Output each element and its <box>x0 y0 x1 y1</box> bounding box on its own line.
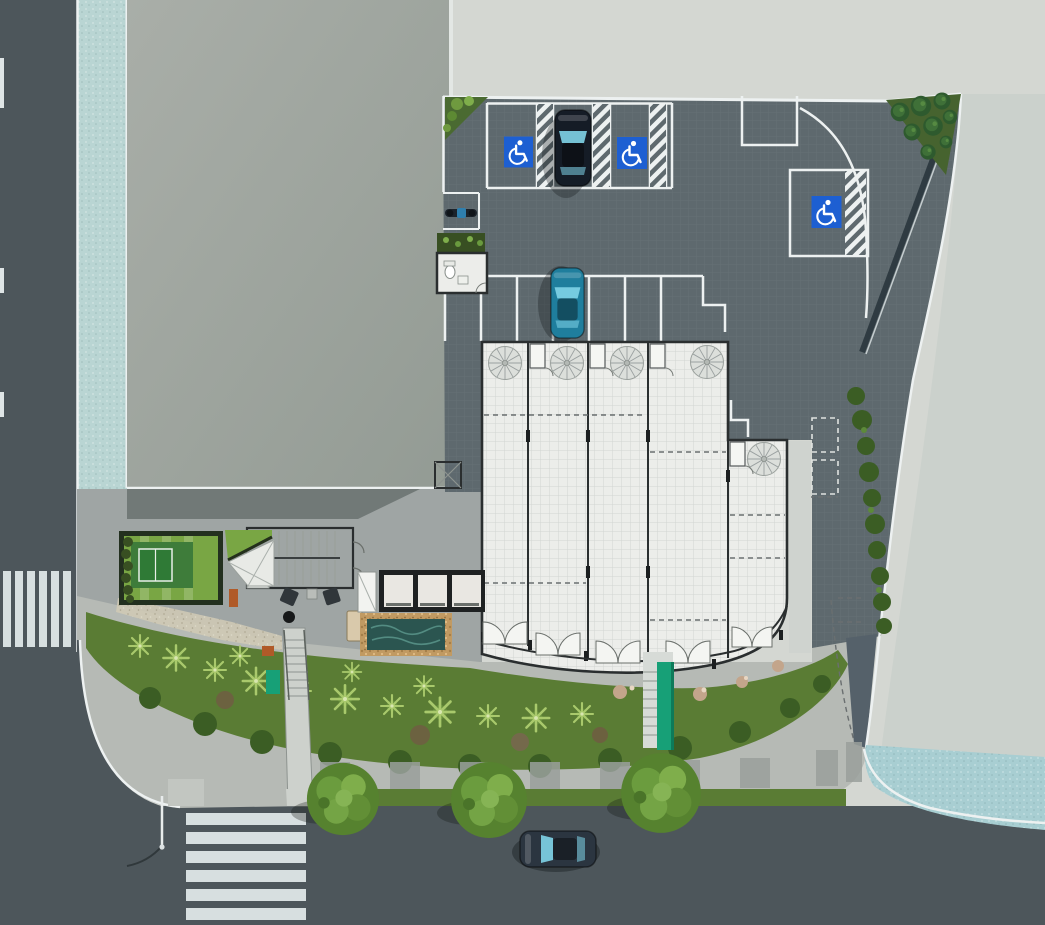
spiral-stair <box>489 347 522 380</box>
green-planter <box>266 670 280 694</box>
lane-dash <box>0 392 4 417</box>
parked-sedan <box>551 268 584 338</box>
parked-suv <box>555 110 591 186</box>
lamp-pad <box>168 779 204 806</box>
water-pool <box>367 619 445 650</box>
accessible-washroom <box>437 253 487 293</box>
street-tree <box>307 763 379 835</box>
elevator-bank <box>379 570 485 612</box>
hedge-leaf <box>467 236 473 242</box>
toilet-fixture <box>445 266 455 279</box>
palm-plant <box>230 646 250 666</box>
elevator-cab <box>418 575 447 607</box>
hedge-leaf <box>477 240 483 246</box>
grass-verge <box>300 789 846 806</box>
palm-plant <box>571 703 593 725</box>
sink-fixture <box>458 276 468 284</box>
street-parked-car <box>520 831 596 867</box>
bench <box>262 646 274 656</box>
south-street-pavement <box>0 806 1045 925</box>
site-plan-rendering <box>0 0 1045 925</box>
palm-plant <box>414 676 434 696</box>
street-tree <box>621 753 701 833</box>
wheelchair-accessible-icon <box>504 137 533 168</box>
coffee-table <box>283 611 295 623</box>
unit-washroom <box>590 344 605 368</box>
palm-plant <box>243 668 269 694</box>
lane-dash <box>0 58 4 108</box>
spiral-stair <box>611 347 644 380</box>
elevator-door-sill <box>454 603 479 606</box>
street-trees <box>291 753 701 838</box>
conifer-tree <box>904 124 921 141</box>
conifer-tree <box>943 110 957 124</box>
conifer-tree <box>920 144 935 159</box>
conifer-tree <box>934 93 951 110</box>
elevator-cab <box>452 575 481 607</box>
water-feature <box>360 613 452 656</box>
spiral-stair <box>551 347 584 380</box>
lane-dash <box>0 268 4 293</box>
hatched-no-park-zone <box>593 104 610 187</box>
side-table <box>307 589 317 599</box>
wheelchair-accessible-icon <box>617 137 647 169</box>
bench <box>229 589 238 607</box>
palm-plant <box>331 685 359 713</box>
garden-stair <box>643 652 674 750</box>
stair-green-wall-edge <box>671 662 674 750</box>
elevator-door-sill <box>420 603 445 606</box>
conifer-tree <box>911 96 931 116</box>
palm-plant <box>426 698 455 727</box>
lamp-head <box>159 844 164 849</box>
hedge-leaf <box>455 241 461 247</box>
unit-washroom <box>650 344 665 368</box>
toilet-tank <box>444 261 455 266</box>
unit-washroom <box>730 442 745 466</box>
conifer-tree <box>940 136 953 149</box>
conifer-tree <box>891 103 910 122</box>
palm-plant <box>343 663 362 682</box>
palm-plant <box>477 705 499 727</box>
elevator-door-sill <box>386 603 411 606</box>
wheelchair-accessible-icon <box>812 196 842 228</box>
palm-plant <box>204 659 226 681</box>
palm-plant <box>523 705 549 731</box>
hatched-no-park-zone <box>650 104 666 187</box>
elevator-cab <box>384 575 413 607</box>
west-neighbor-roof <box>127 0 452 489</box>
hedge-leaf <box>443 237 449 243</box>
street-tree <box>451 762 527 838</box>
palm-plant <box>163 645 188 670</box>
east-exterior-walkway <box>789 441 811 653</box>
unit-washroom <box>530 344 545 368</box>
hatched-no-park-zone <box>845 171 866 255</box>
spiral-stair <box>691 346 724 379</box>
palm-plant <box>381 695 403 717</box>
palm-plant <box>129 635 151 657</box>
west-teal-walkway-texture <box>78 0 127 489</box>
west-street <box>0 0 77 925</box>
west-street-pavement <box>0 0 77 925</box>
parked-motorcycle <box>445 208 477 218</box>
conifer-tree <box>923 116 943 136</box>
